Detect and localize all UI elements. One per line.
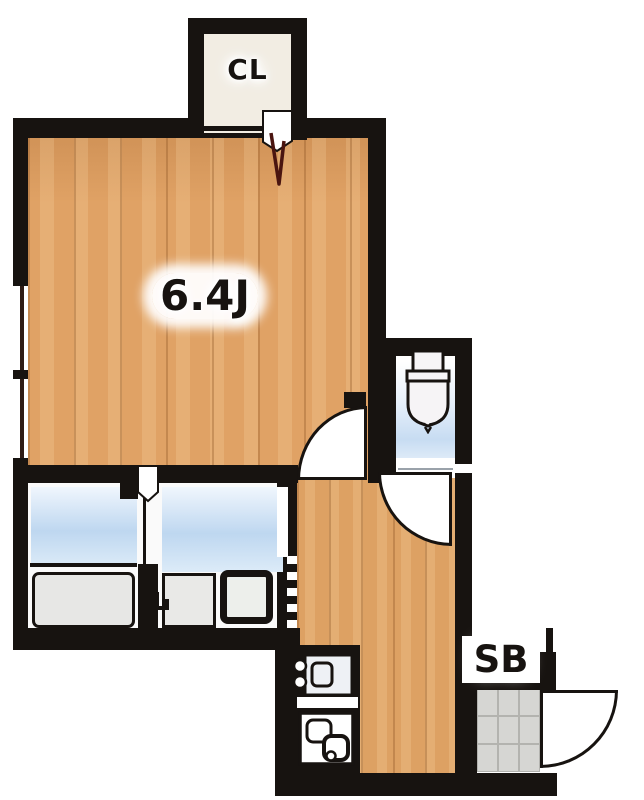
window-mullion-tick	[13, 370, 28, 379]
bath-divider-stub	[120, 483, 138, 499]
toilet-wall-gap	[455, 464, 472, 473]
bathtub-rim-line	[30, 563, 137, 567]
shoe-box-label: SB	[474, 641, 529, 678]
shoe-box: SB	[462, 636, 540, 690]
genkan-left-wall	[455, 685, 477, 775]
closet-opening	[204, 118, 291, 133]
bath-floor-panel	[31, 487, 137, 567]
floor-plan: SB 6.4J	[0, 0, 644, 800]
stove-icon	[298, 711, 356, 767]
closet-label: CL	[227, 56, 267, 84]
genkan-tile	[477, 688, 540, 772]
bottom-wall	[275, 773, 557, 796]
main-room-label: 6.4J	[152, 273, 258, 319]
washroom-doorway-gap	[277, 487, 288, 557]
bath-divider-line	[143, 495, 146, 567]
toilet-icon	[402, 348, 454, 434]
entrance-door-arc	[540, 690, 618, 768]
toilet-threshold-line	[398, 468, 453, 470]
washroom-top-wall	[13, 465, 298, 483]
main-room-label-wrap: 6.4J	[125, 264, 285, 328]
washer-tap-icon	[154, 590, 172, 618]
folding-door-dashes	[287, 556, 297, 628]
closet-label-wrap: CL	[204, 50, 291, 90]
bathtub	[32, 572, 135, 628]
kitchen-sink-icon	[291, 652, 355, 698]
washroom-floor-panel	[162, 487, 283, 572]
toilet-left-wall	[378, 338, 396, 472]
kitchen-counter-band	[297, 697, 358, 708]
closet-top-wall	[188, 18, 307, 34]
closet-outer-wall	[188, 18, 204, 133]
vanity-sink	[220, 570, 273, 624]
top-wall	[13, 118, 386, 138]
